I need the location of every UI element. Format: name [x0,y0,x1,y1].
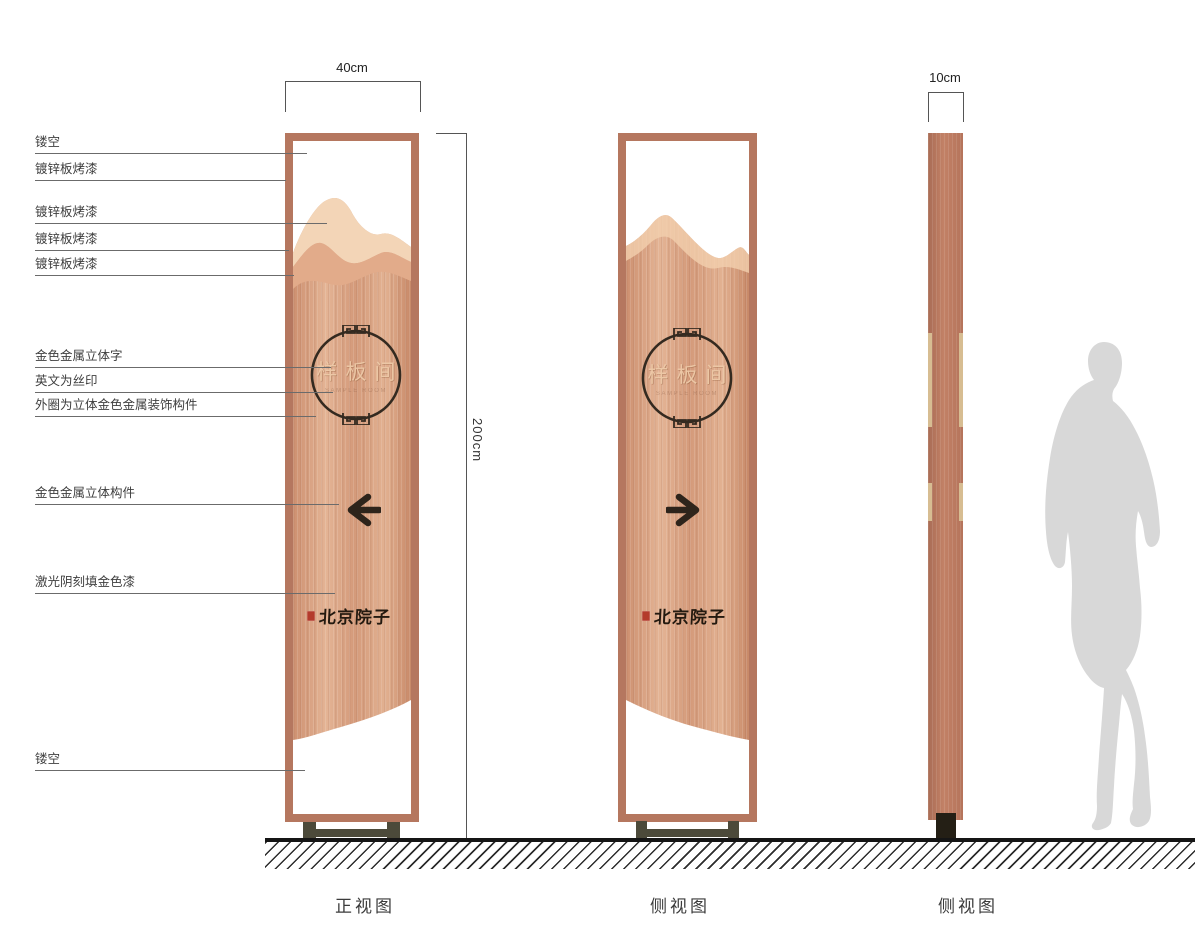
dim-side-depth-bracket [928,92,964,122]
callout-gold-ring-component: 外圈为立体金色金属装饰构件 [35,399,316,417]
gold-strip-right-lower [959,483,963,521]
dim-front-width-label: 40cm [336,60,368,75]
profile-view-bar [928,133,963,820]
callout-galvanized-paint-2: 镀锌板烤漆 [35,206,327,224]
callout-hollow-top: 镂空 [35,136,307,154]
circle-sublabel: SAMPLE ROOM [656,391,718,397]
brand-calligraphy: 北京院子 [653,603,726,628]
side-panel-face: 样板间 SAMPLE ROOM 北京院子 [626,141,749,814]
callout-label: 镀锌板烤漆 [35,162,98,176]
circle-emblem-text: 样板间 SAMPLE ROOM [637,328,737,428]
side-base-bar [642,829,734,837]
callout-gold-3d-component: 金色金属立体构件 [35,487,339,505]
callout-english-silkscreen: 英文为丝印 [35,375,333,393]
front-panel-face: 样板间 SAMPLE ROOM 北京院子 [293,141,411,814]
circle-sublabel: SAMPLE ROOM [325,388,387,394]
callout-label: 镀锌板烤漆 [35,257,98,271]
caption-front-view: 正视图 [335,892,395,917]
callout-label: 镀锌板烤漆 [35,205,98,219]
red-seal-stamp [642,611,650,621]
callout-label: 金色金属立体字 [35,349,123,363]
brand-signature: 北京院子 [642,603,726,628]
callout-label: 外圈为立体金色金属装饰构件 [35,398,198,412]
dim-height-top-tick [436,133,466,134]
callout-label: 英文为丝印 [35,374,98,388]
ground-line [265,838,1195,842]
callout-laser-engraved-gold: 激光阴刻填金色漆 [35,576,335,594]
arrow-right-icon [666,492,706,528]
callout-label: 镂空 [35,135,60,149]
caption-side-view-1: 侧视图 [650,892,710,917]
callout-label: 镀锌板烤漆 [35,232,98,246]
brand-calligraphy: 北京院子 [318,603,391,628]
human-scale-silhouette [1033,336,1173,836]
red-seal-stamp [307,611,315,621]
callout-hollow-bottom: 镂空 [35,753,305,771]
wave-cutout-bottom [293,694,411,814]
side-view-panel: 样板间 SAMPLE ROOM 北京院子 [618,133,757,822]
callout-galvanized-paint-4: 镀锌板烤漆 [35,258,294,276]
dim-height-line [466,133,467,838]
dim-height-label: 200cm [470,418,485,462]
mountain-silhouette-top [626,141,749,311]
wave-cutout-bottom [626,694,749,814]
circle-label: 样板间 [640,359,735,389]
callout-label: 激光阴刻填金色漆 [35,575,135,589]
dim-side-depth-label: 10cm [929,70,961,85]
arrow-left-icon [341,492,381,528]
brand-signature: 北京院子 [307,603,391,628]
gold-strip-right-upper [959,333,963,427]
caption-side-view-2: 侧视图 [938,892,998,917]
profile-base-foot [936,813,956,838]
front-base-bar [310,829,394,837]
callout-label: 金色金属立体构件 [35,486,135,500]
dim-front-width-bracket [285,81,421,112]
ground-hatch [265,842,1195,869]
front-view-panel: 样板间 SAMPLE ROOM 北京院子 [285,133,419,822]
gold-strip-left-lower [928,483,932,521]
callout-gold-3d-characters: 金色金属立体字 [35,350,331,368]
callout-galvanized-paint-1: 镀锌板烤漆 [35,163,286,181]
signage-spec-drawing: 镂空 镀锌板烤漆 镀锌板烤漆 镀锌板烤漆 镀锌板烤漆 金色金属立体字 英文为丝印… [0,0,1195,927]
callout-label: 镂空 [35,752,60,766]
callout-galvanized-paint-3: 镀锌板烤漆 [35,233,289,251]
gold-strip-left-upper [928,333,932,427]
mountain-silhouette-top [293,141,411,311]
